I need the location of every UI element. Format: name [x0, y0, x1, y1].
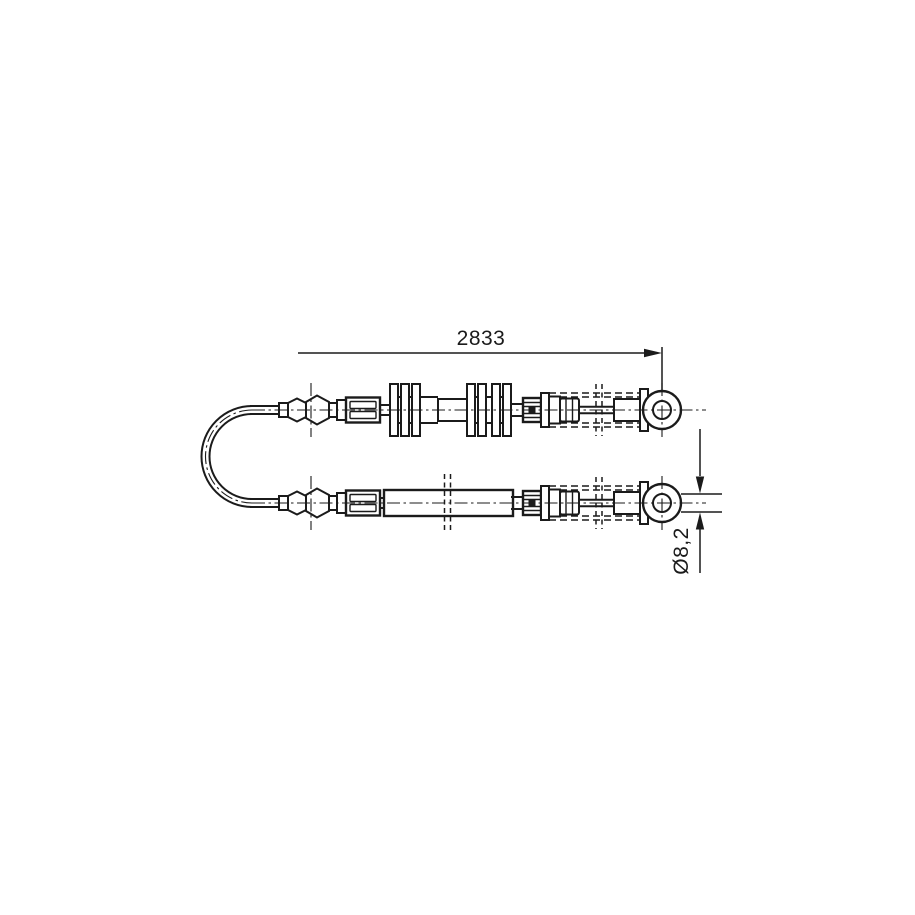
dimension-arrowhead-right — [644, 349, 662, 358]
dimension-arrowhead-down — [696, 477, 704, 494]
length-dimension-label: 2833 — [457, 327, 506, 350]
u-bend — [202, 406, 253, 507]
diameter-dimension-label: Ø8,2 — [670, 527, 693, 575]
brake-cable-drawing: 2833 Ø8,2 — [0, 0, 915, 915]
dimension-arrowhead-up — [696, 513, 704, 530]
technical-drawing-page: 2833 Ø8,2 — [0, 0, 915, 915]
